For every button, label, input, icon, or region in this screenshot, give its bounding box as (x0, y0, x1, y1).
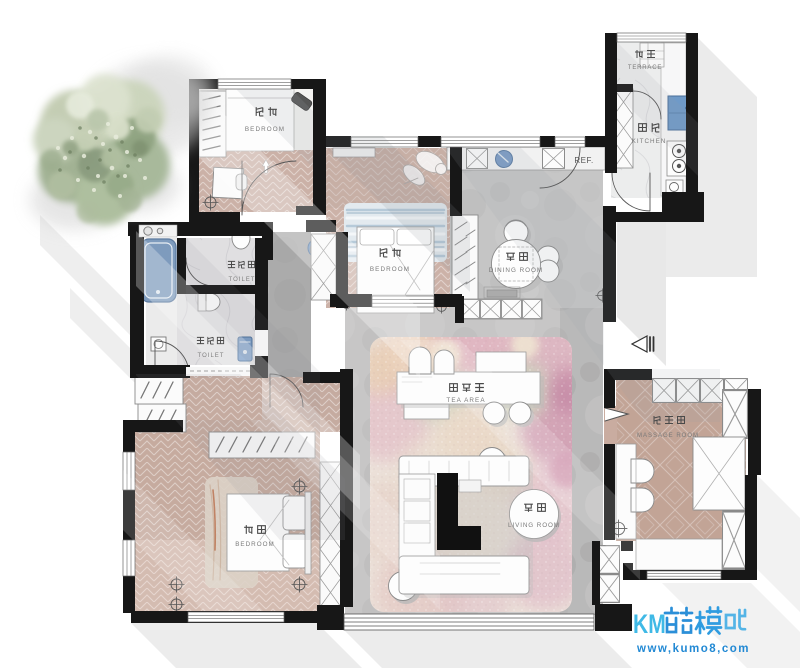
svg-text:BEDROOM: BEDROOM (370, 266, 410, 273)
svg-text:TOILET: TOILET (198, 353, 225, 359)
svg-text:www,kumo8,com: www,kumo8,com (636, 643, 750, 655)
svg-text:BEDROOM: BEDROOM (235, 541, 275, 548)
svg-text:KM: KM (633, 610, 666, 640)
svg-text:LIVING ROOM: LIVING ROOM (508, 522, 560, 529)
svg-text:TOILET: TOILET (229, 277, 256, 283)
svg-text:TERRACE: TERRACE (628, 65, 662, 71)
svg-text:TEA AREA: TEA AREA (446, 397, 485, 404)
svg-text:KITCHEN: KITCHEN (632, 138, 667, 145)
svg-text:MASSAGE ROOM: MASSAGE ROOM (637, 433, 699, 439)
svg-text:BEDROOM: BEDROOM (245, 126, 285, 133)
svg-text:DINING ROOM: DINING ROOM (489, 267, 543, 274)
svg-text:REF.: REF. (574, 156, 593, 165)
